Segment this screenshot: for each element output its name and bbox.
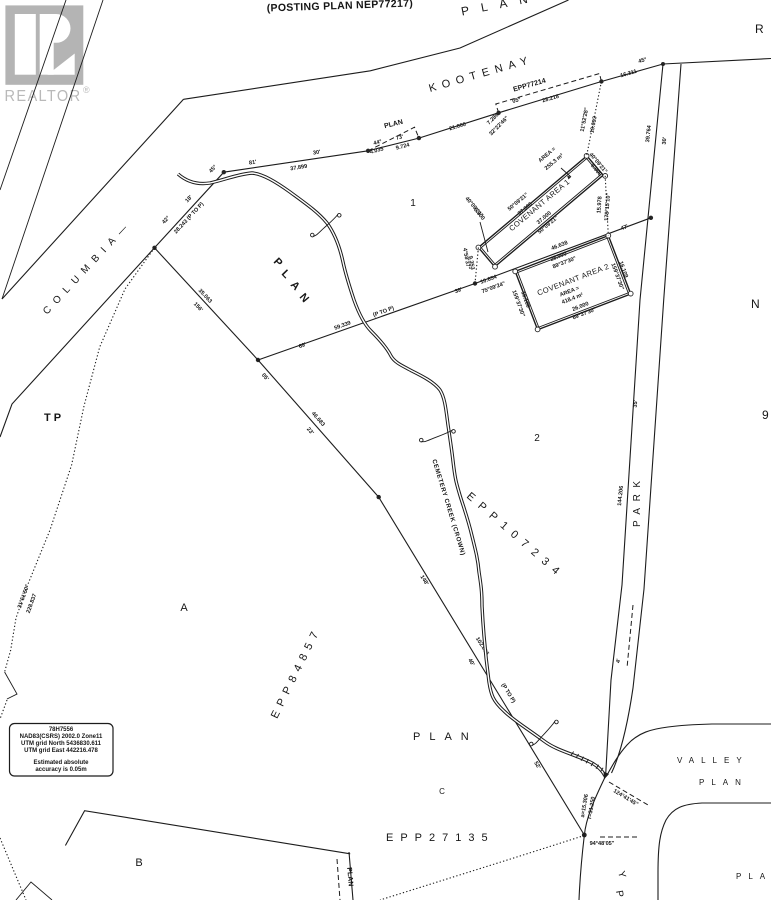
svg-text:accuracy is 0.05m: accuracy is 0.05m	[35, 767, 86, 773]
svg-text:9: 9	[762, 408, 769, 422]
svg-text:35': 35'	[633, 399, 640, 408]
svg-text:EPP27135: EPP27135	[386, 832, 495, 844]
svg-text:R: R	[755, 22, 764, 36]
svg-text:1: 1	[410, 198, 416, 209]
svg-text:B: B	[135, 857, 142, 869]
svg-text:TP: TP	[44, 412, 64, 424]
svg-text:15.978: 15.978	[596, 196, 603, 213]
svg-text:PLAN: PLAN	[699, 778, 748, 787]
svg-text:2: 2	[534, 433, 540, 444]
svg-text:®: ®	[83, 85, 90, 95]
svg-text:Estimated absolute: Estimated absolute	[33, 760, 89, 766]
svg-text:VALLEY: VALLEY	[677, 756, 749, 765]
svg-text:PLA: PLA	[736, 872, 771, 881]
svg-text:C: C	[439, 787, 445, 796]
svg-text:UTM grid North 5436830.611: UTM grid North 5436830.611	[21, 741, 102, 747]
svg-text:PLAN: PLAN	[413, 731, 478, 743]
svg-text:UTM grid East 442216.478: UTM grid East 442216.478	[24, 748, 98, 754]
svg-text:N: N	[751, 297, 760, 311]
svg-text:78H7556: 78H7556	[49, 727, 74, 733]
svg-text:PARK: PARK	[632, 475, 643, 528]
svg-text:94°48'05": 94°48'05"	[590, 841, 615, 847]
svg-text:NAD83(CSRS) 2002.0 Zone11: NAD83(CSRS) 2002.0 Zone11	[20, 734, 103, 740]
svg-text:30': 30'	[662, 136, 669, 145]
svg-text:A: A	[180, 602, 188, 614]
